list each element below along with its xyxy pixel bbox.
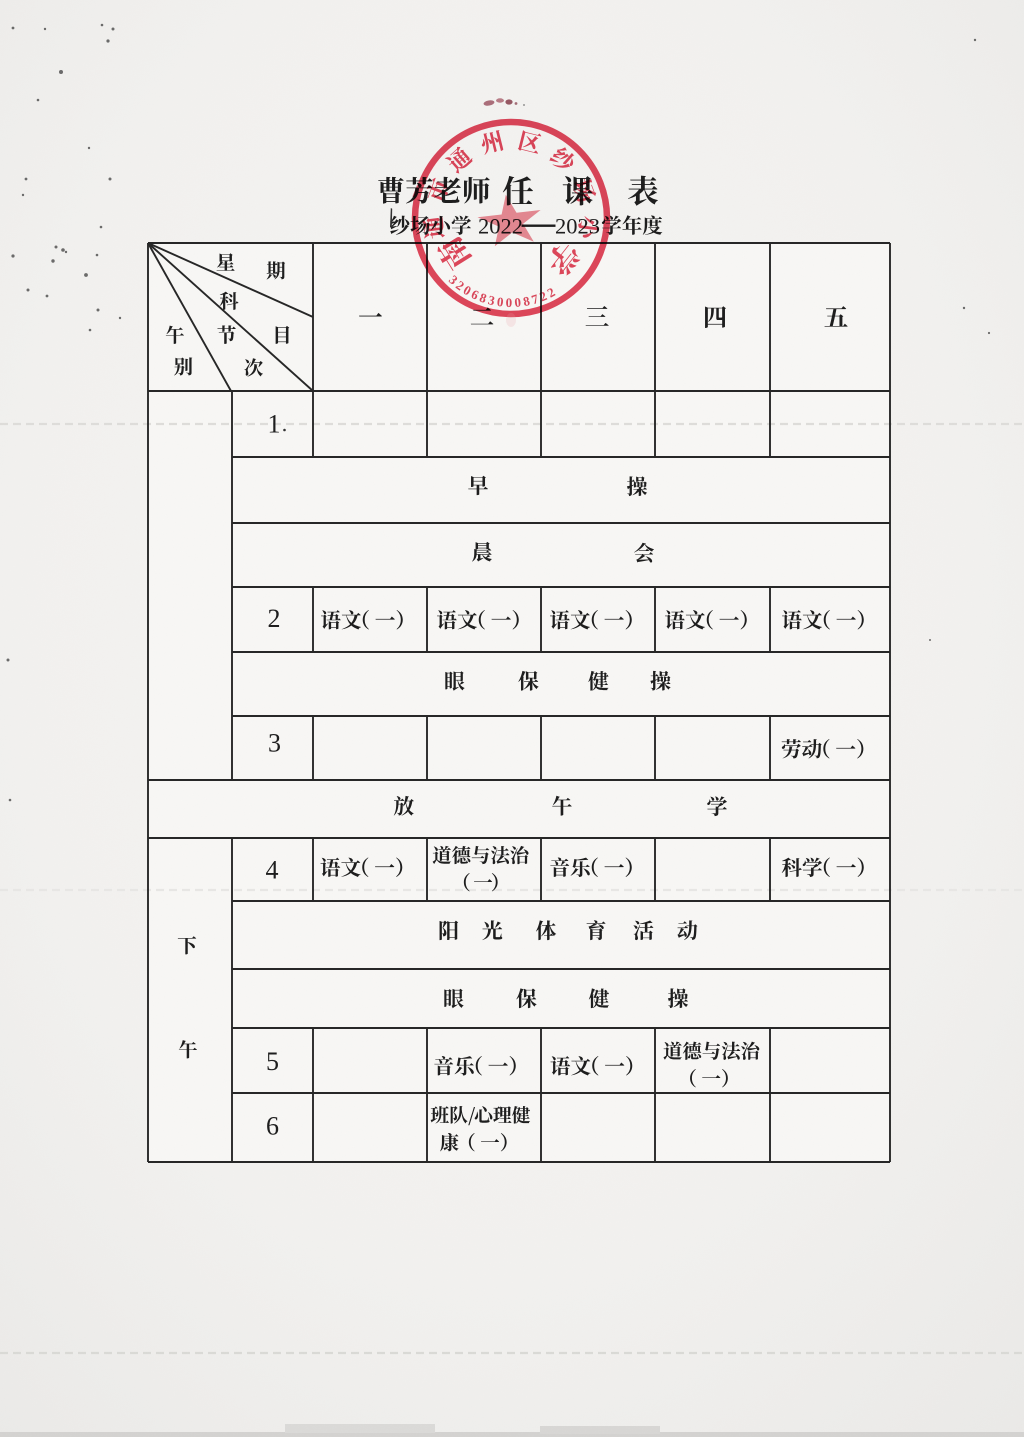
svg-text:1: 1: [268, 410, 281, 439]
svg-text:2023: 2023: [555, 214, 600, 239]
svg-text:4: 4: [266, 856, 279, 885]
svg-text:5: 5: [266, 1047, 279, 1076]
svg-text:3: 3: [268, 729, 281, 758]
svg-text:6: 6: [266, 1112, 279, 1141]
svg-text:2: 2: [268, 604, 281, 633]
